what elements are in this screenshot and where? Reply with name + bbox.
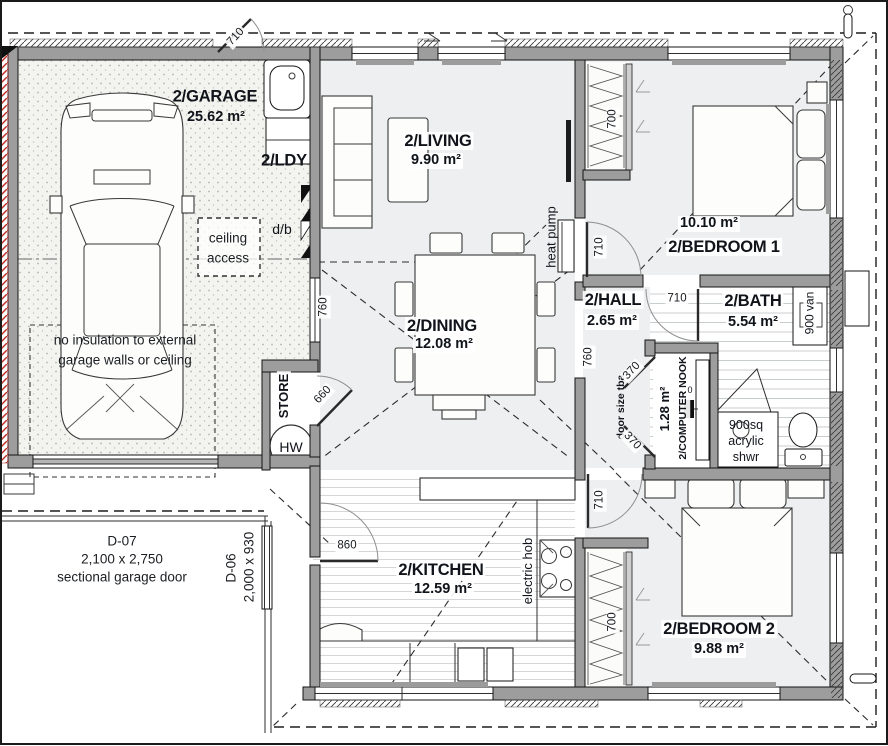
shower-line3: shwr [733, 450, 759, 464]
toilet [789, 413, 817, 447]
dining-name: 2/DINING [405, 317, 479, 335]
laundry-name: 2/LDY [261, 152, 307, 171]
dim-bath-door: 710 [665, 293, 688, 306]
ceiling-access-line2: access [207, 251, 249, 266]
garage-sectional-door [33, 455, 218, 468]
dim-hall-opening: 760 [583, 345, 596, 368]
electric-hob-label: electric hob [521, 536, 535, 606]
downpipe-top-right [844, 6, 853, 39]
dim-servery-window: 760 [318, 295, 331, 318]
bath-area: 5.54 m² [726, 315, 780, 331]
nook-area: 1.28 m² [658, 385, 672, 434]
dim-bed2-wardrobe: 700 [607, 610, 620, 633]
hall-name: 2/HALL [583, 291, 644, 309]
no-insulation-line2: garage walls or ceiling [58, 353, 192, 368]
outlet-label: 0 [687, 385, 692, 395]
nook-name: 2/COMPUTER NOOK [678, 354, 690, 461]
d07-size: 2,100 x 2,750 [81, 552, 163, 567]
bedroom1-name: 2/BEDROOM 1 [666, 238, 782, 256]
ceiling-access-line1: ceiling [209, 231, 247, 246]
peninsula-counter [420, 478, 575, 500]
heat-pump-unit [558, 220, 574, 272]
garage-area: 25.62 m² [187, 109, 245, 125]
vanity-label: 900 van [803, 290, 816, 337]
bedroom2-name: 2/BEDROOM 2 [661, 620, 777, 638]
exterior-unit [845, 271, 869, 326]
living-window-2 [438, 47, 505, 65]
bedroom1-top-window [668, 47, 790, 65]
shower-line2: acrylic [728, 434, 763, 448]
garage-name: 2/GARAGE [173, 88, 258, 107]
car [50, 93, 194, 439]
db-label: d/b [272, 221, 291, 237]
store-name: STORE [277, 372, 291, 421]
living-name: 2/LIVING [402, 132, 473, 150]
oven [458, 648, 484, 681]
hw-label: HW [279, 439, 302, 455]
no-insulation-line1: no insulation to external [54, 333, 197, 348]
bath-name: 2/BATH [722, 292, 783, 310]
shower-line1: 900sq [729, 418, 763, 432]
bedroom2-area: 9.88 m² [692, 642, 746, 658]
bedroom1-side-window [826, 100, 843, 218]
d07-type: sectional garage door [57, 570, 187, 585]
bedroom1-area: 10.10 m² [678, 216, 740, 232]
hall-area: 2.65 m² [585, 314, 639, 330]
floor-plan: 2/GARAGE 25.62 m² 2/LDY 2/LIVING 9.90 m²… [0, 0, 888, 746]
bedroom2-bottom-window [648, 682, 780, 700]
dim-bed2-door: 710 [594, 488, 607, 511]
d06-code: D-06 [224, 553, 239, 582]
bedroom2-side-window [830, 553, 843, 643]
bath-side-window [830, 348, 843, 392]
living-window-1 [352, 47, 418, 65]
d07-code: D-07 [107, 534, 136, 549]
dim-kitchen-door: 860 [335, 540, 358, 553]
dim-bed1-door: 710 [594, 235, 607, 258]
downpipe-bottom-right [850, 674, 876, 683]
dim-bed1-wardrobe: 700 [607, 107, 620, 130]
dining-area: 12.08 m² [413, 337, 475, 353]
kitchen-name: 2/KITCHEN [396, 561, 485, 579]
tv [566, 120, 571, 182]
living-area: 9.90 m² [409, 153, 463, 169]
kitchen-area: 12.59 m² [412, 582, 474, 598]
kitchen-window [315, 682, 493, 700]
heat-pump-label: heat pump [544, 206, 559, 267]
d06-size: 2,000 x 930 [242, 532, 257, 603]
